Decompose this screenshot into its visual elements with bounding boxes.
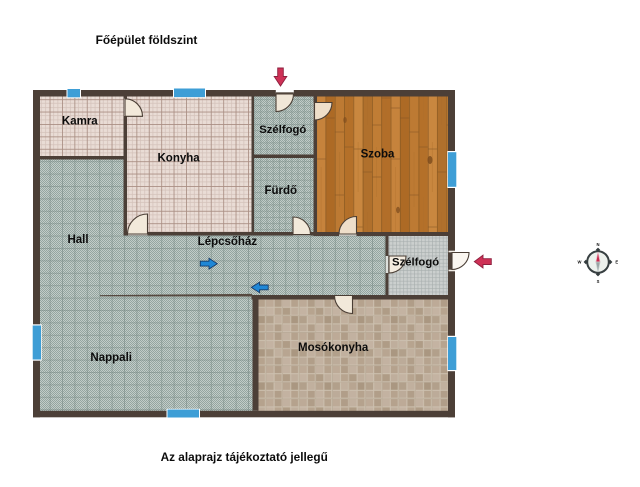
svg-text:Fürdő: Fürdő <box>265 185 298 197</box>
svg-text:Konyha: Konyha <box>158 153 201 165</box>
svg-text:Lépcsőház: Lépcsőház <box>198 236 258 248</box>
svg-text:Főépület földszint: Főépület földszint <box>96 33 198 47</box>
svg-text:Szélfogó: Szélfogó <box>259 124 306 136</box>
svg-text:W: W <box>578 260 582 265</box>
svg-text:E: E <box>615 260 618 265</box>
svg-text:Szoba: Szoba <box>361 149 395 161</box>
svg-text:N: N <box>596 242 599 247</box>
svg-text:Kamra: Kamra <box>62 115 98 127</box>
svg-text:S: S <box>597 279 600 284</box>
svg-text:Mosókonyha: Mosókonyha <box>298 342 369 354</box>
svg-text:Nappali: Nappali <box>90 352 132 364</box>
svg-text:Szélfogó: Szélfogó <box>392 257 439 269</box>
svg-text:Az alaprajz tájékoztató jelleg: Az alaprajz tájékoztató jellegű <box>161 450 328 464</box>
svg-text:Hall: Hall <box>67 234 88 246</box>
